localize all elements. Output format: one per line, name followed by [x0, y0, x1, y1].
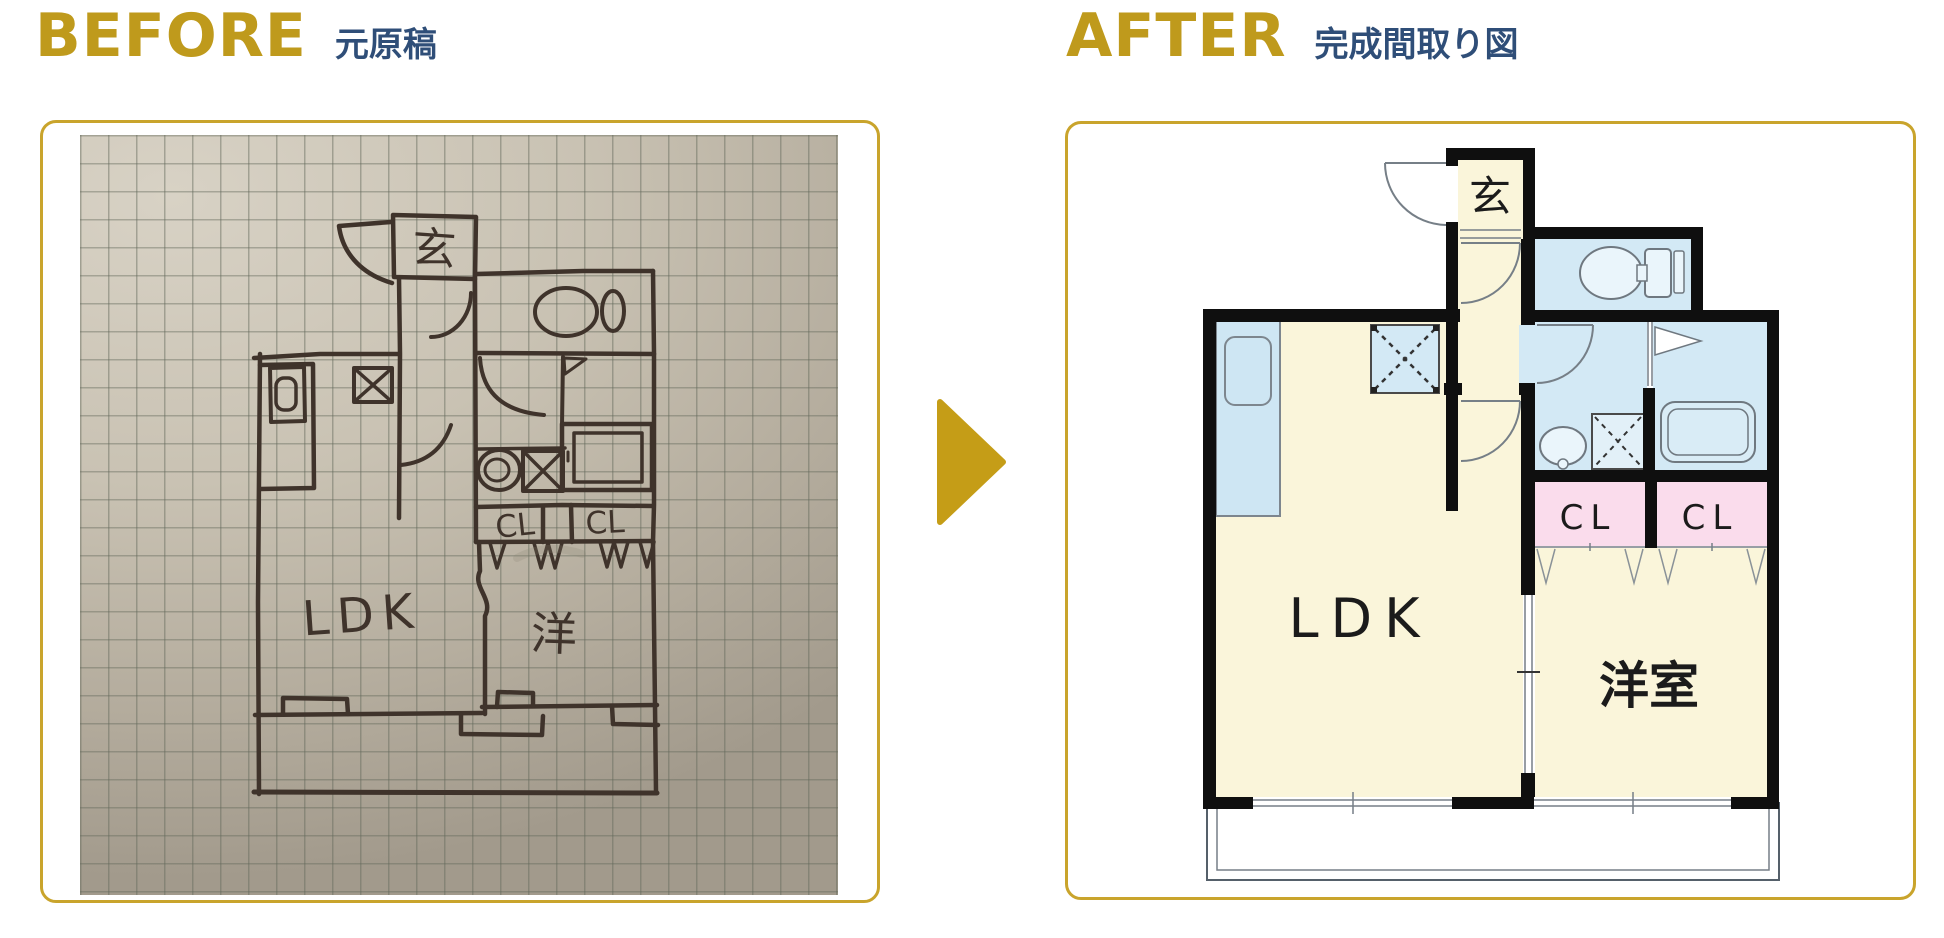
after-panel: 玄 LDK 洋室 CL CL — [1065, 121, 1916, 900]
sketch-toilet-tank — [602, 291, 624, 331]
right-triangle-icon — [928, 392, 1018, 532]
sketch-cl-dividers — [543, 505, 572, 542]
closet-right-label: CL — [1682, 498, 1739, 538]
before-subtitle: 元原稿 — [335, 28, 437, 62]
ldk-label: LDK — [1288, 587, 1431, 650]
toilet-bowl — [1580, 247, 1642, 299]
before-title: BEFORE — [35, 6, 307, 66]
sketch-sliding-partition — [478, 542, 487, 714]
sketch-hall-right-wall — [475, 279, 476, 542]
ldk-western-sliding-door — [1525, 595, 1532, 773]
sketch-bath-door-flag — [564, 358, 586, 374]
sketch-western-lower-notch — [612, 706, 658, 725]
sketch-outer-bottom-wall — [254, 792, 657, 793]
sketch-toilet-bowl — [535, 288, 597, 336]
washroom-door-gap — [1519, 325, 1537, 383]
sketch-entry-door-arc — [339, 222, 392, 283]
sketch-bathtub — [574, 433, 642, 482]
sketch-ldk-label: LDK — [300, 583, 423, 647]
before-sketch-photo: 玄 CL CL LDK 洋 — [80, 135, 838, 895]
washbath-thin-divider — [1648, 322, 1652, 386]
sketch-sink-inner — [485, 459, 509, 481]
sketch-closet-right-label: CL — [585, 504, 626, 542]
sketch-cl-top — [476, 505, 653, 507]
before-header: BEFORE 元原稿 — [35, 6, 437, 66]
sketch-kitchen-sink — [276, 378, 296, 410]
sketch-cl-wmark-2 — [600, 542, 628, 567]
after-floorplan: 玄 LDK 洋室 CL CL — [1068, 124, 1913, 897]
sketch-closet-left-label: CL — [494, 506, 537, 546]
sketch-lower-notch — [461, 715, 543, 735]
sketch-stove-x — [355, 369, 391, 401]
before-sketch-drawing: 玄 CL CL LDK 洋 — [80, 135, 838, 895]
sketch-ldk-bottom-wall — [255, 713, 482, 715]
after-subtitle: 完成間取り図 — [1315, 28, 1519, 62]
sketch-western-label: 洋 — [530, 606, 578, 662]
sketch-ldk-top-wall — [254, 354, 399, 358]
toilet-fixture — [1580, 247, 1684, 299]
sketch-washbath-divider — [562, 357, 563, 425]
sketch-toilet-right-wall — [653, 271, 654, 353]
sketch-ldk-left-wall — [258, 354, 260, 794]
sketch-washroom-door-arc — [480, 358, 544, 415]
transform-arrow — [928, 392, 1018, 532]
entrance-label: 玄 — [1469, 172, 1511, 221]
sketch-toilet-bottom-wall — [476, 353, 654, 354]
balcony — [1207, 803, 1779, 880]
stove — [1371, 325, 1439, 393]
toilet-tank — [1645, 249, 1671, 297]
sink-tap — [1558, 459, 1568, 469]
before-panel: 玄 CL CL LDK 洋 — [40, 120, 880, 903]
washing-machine — [1592, 414, 1644, 469]
sketch-washroom-divider — [478, 448, 565, 449]
sketch-washing-machine-x — [524, 452, 562, 490]
sketch-western-bottom-wall — [482, 705, 657, 707]
after-title: AFTER — [1066, 6, 1287, 66]
sketch-hall-left-wall — [399, 278, 400, 518]
sketch-hall-door-arc — [431, 293, 471, 337]
sketch-right-wall — [653, 354, 656, 792]
western-room-label: 洋室 — [1599, 657, 1699, 715]
sketch-ldk-window-notch — [283, 698, 348, 714]
sketch-cl-vmark-1 — [490, 543, 505, 568]
sketch-hall-lower-door-arc — [401, 425, 451, 465]
sketch-toilet-top-wall — [476, 271, 653, 274]
before-after-floorplan-page: { "headers": { "before": { "title": "BEF… — [0, 0, 1944, 938]
entrance-door-arc — [1385, 163, 1446, 225]
bathtub — [1661, 402, 1755, 462]
closet-left-label: CL — [1560, 498, 1617, 538]
after-header: AFTER 完成間取り図 — [1066, 6, 1519, 66]
sketch-entrance-label: 玄 — [410, 223, 457, 277]
